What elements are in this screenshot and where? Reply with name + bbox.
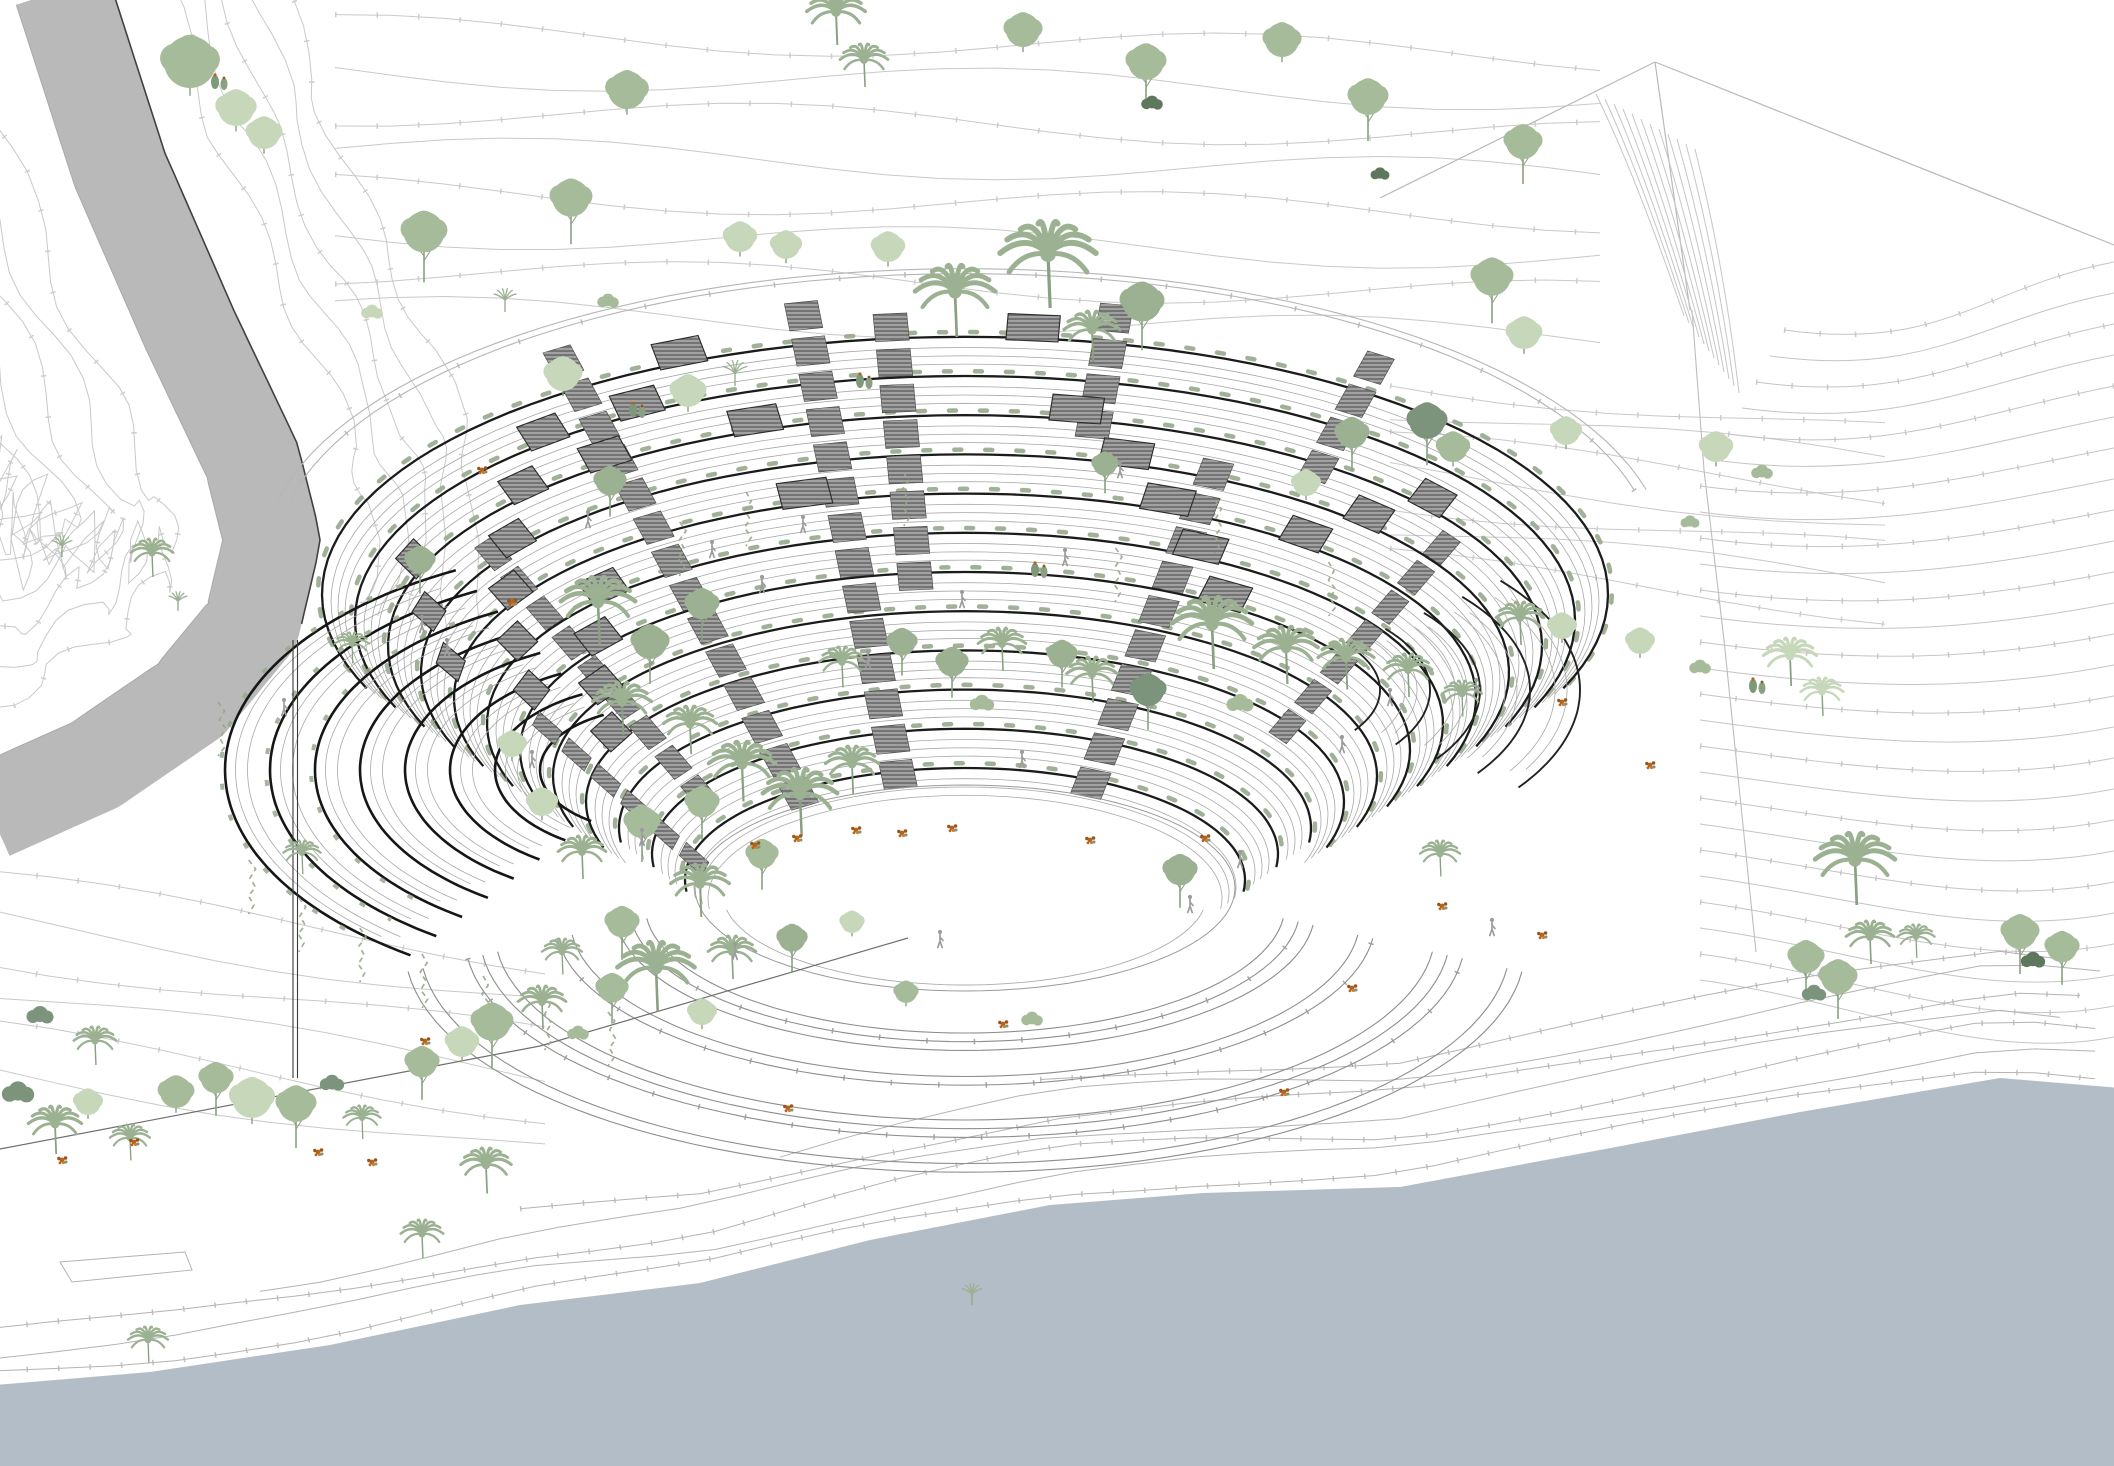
palm-tree <box>825 746 878 794</box>
flowering-shrub <box>897 829 907 837</box>
flowering-shrub <box>57 1156 67 1164</box>
tree <box>1347 78 1388 141</box>
flowering-shrub <box>1537 931 1547 939</box>
yucca-plant <box>169 591 188 611</box>
tree <box>1625 627 1655 658</box>
palm-tree <box>708 936 756 979</box>
tree <box>275 1085 316 1148</box>
palm-tree <box>1897 925 1934 958</box>
architectural-site-illustration: Terraced quarry amphitheatre with palm p… <box>0 0 2114 1466</box>
tree <box>770 230 802 263</box>
tree <box>776 924 807 972</box>
tree <box>1550 416 1582 449</box>
quarry-mountain-face <box>1380 62 2114 1043</box>
palm-tree <box>840 44 888 87</box>
tree <box>1818 959 1857 1019</box>
tree <box>1503 124 1542 184</box>
flowering-shrub <box>1645 761 1655 769</box>
site-plan-svg <box>0 0 2114 1466</box>
shrub <box>320 1075 344 1091</box>
palm-tree <box>978 628 1026 671</box>
person-figure <box>586 510 591 528</box>
shrub <box>970 695 994 711</box>
shrub <box>1681 515 1700 527</box>
yucca-plant <box>494 288 517 312</box>
tree <box>229 1077 275 1124</box>
tree <box>1470 257 1513 323</box>
flowering-shrub <box>313 1148 323 1156</box>
tree <box>1262 22 1301 62</box>
palm-tree <box>1815 833 1895 905</box>
tree <box>158 1075 195 1113</box>
tree <box>1162 854 1197 908</box>
person-figure <box>960 590 965 608</box>
tree <box>687 998 717 1029</box>
shrub <box>567 1026 589 1040</box>
person-figure <box>530 750 535 768</box>
palm-tree <box>542 939 582 975</box>
person-figure <box>1340 735 1345 753</box>
tree <box>160 35 220 96</box>
palm-tree <box>28 1106 81 1154</box>
shrub <box>27 1006 54 1024</box>
shrub <box>1227 694 1254 712</box>
flowering-shrub <box>783 1104 793 1112</box>
water-body <box>0 1078 2114 1466</box>
palm-tree <box>461 1148 512 1193</box>
palm-tree <box>807 0 865 45</box>
shrub <box>1021 1012 1043 1026</box>
palm-tree <box>1172 597 1252 669</box>
tree <box>1091 452 1118 494</box>
shrub <box>2 1081 34 1102</box>
yucca-plant <box>723 360 748 386</box>
shrub <box>361 305 383 319</box>
cactus-plant <box>211 73 228 90</box>
shrub <box>1371 167 1390 179</box>
cactus-plant <box>856 372 873 389</box>
tree <box>198 1062 233 1116</box>
cactus-plant <box>1749 677 1766 694</box>
palm-tree <box>558 836 606 879</box>
person-figure <box>1188 895 1193 913</box>
tree <box>684 786 719 840</box>
palm-tree <box>401 1220 444 1258</box>
palm-tree <box>1801 678 1844 716</box>
tree <box>745 839 778 890</box>
tree <box>1125 43 1166 106</box>
person-figure <box>710 540 715 558</box>
flowering-shrub <box>1085 836 1095 844</box>
flowering-shrub <box>1437 902 1447 910</box>
shrub <box>1689 660 1711 674</box>
tree <box>871 231 906 266</box>
tree <box>246 116 283 154</box>
palm-tree <box>1420 841 1460 877</box>
palm-tree <box>915 265 995 337</box>
palm-tree <box>110 1125 150 1161</box>
tree <box>404 1046 439 1100</box>
tree <box>723 221 758 256</box>
person-figure <box>1063 548 1068 566</box>
palm-tree <box>1318 639 1374 689</box>
flowering-shrub <box>851 826 861 834</box>
person-figure <box>760 575 765 593</box>
palm-tree <box>1254 627 1318 684</box>
person-figure <box>1490 918 1495 936</box>
palm-tree <box>763 769 837 836</box>
palm-tree <box>671 864 729 917</box>
palm-tree <box>518 986 566 1029</box>
flowering-shrub <box>367 1158 377 1166</box>
palm-tree <box>128 1327 168 1363</box>
palm-tree <box>74 1027 117 1065</box>
palm-tree <box>283 841 320 874</box>
flowering-shrub <box>1347 984 1357 992</box>
palm-tree <box>819 647 864 688</box>
tree <box>1506 316 1543 354</box>
flowering-shrub <box>947 824 957 832</box>
palm-tree <box>343 1106 380 1139</box>
tree <box>630 624 669 684</box>
palm-tree <box>131 539 174 577</box>
shrub <box>1141 96 1163 110</box>
flowering-shrub <box>792 834 802 842</box>
flowering-shrub <box>420 1037 430 1045</box>
tree <box>549 178 592 244</box>
palm-tree <box>1846 921 1894 964</box>
tree <box>839 910 864 936</box>
shrub <box>1751 465 1773 479</box>
tree <box>526 787 558 820</box>
tree <box>605 70 649 115</box>
shrub <box>597 294 619 308</box>
tree <box>893 980 918 1006</box>
flowering-shrub <box>998 1020 1008 1028</box>
person-figure <box>938 930 943 948</box>
